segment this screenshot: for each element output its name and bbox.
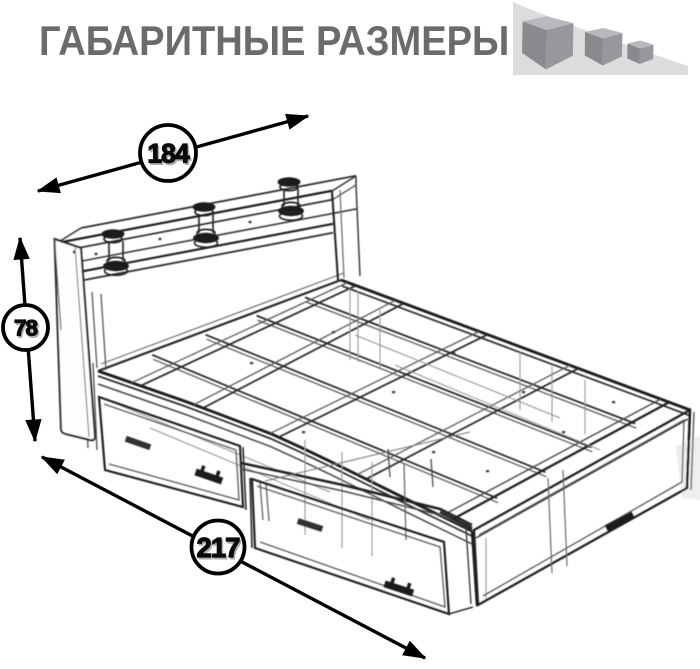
- svg-text:184: 184: [147, 139, 189, 169]
- svg-text:217: 217: [197, 532, 241, 563]
- svg-text:78: 78: [14, 316, 38, 341]
